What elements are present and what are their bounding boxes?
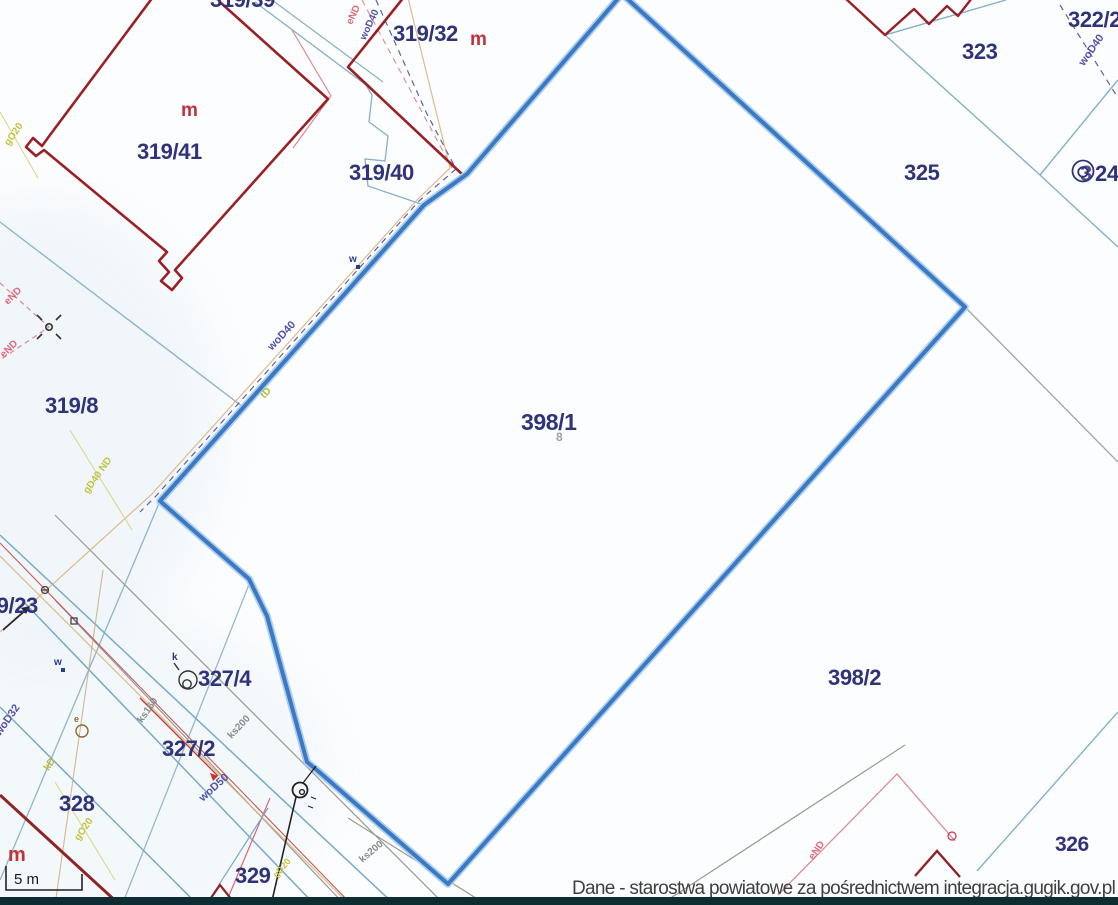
svg-text:398/2: 398/2 [828,665,881,690]
svg-text:398/1: 398/1 [521,409,577,435]
svg-text:328: 328 [59,791,95,816]
svg-text:327/2: 327/2 [162,736,215,761]
svg-text:w: w [53,657,62,668]
svg-text:319/8: 319/8 [45,393,98,418]
svg-text:322/2: 322/2 [1068,7,1118,32]
svg-text:319/41: 319/41 [137,139,202,164]
svg-text:m: m [8,844,26,866]
svg-text:319/39: 319/39 [210,0,275,12]
svg-text:323: 323 [962,39,998,64]
svg-text:326: 326 [1055,833,1089,856]
svg-text:319/23: 319/23 [0,593,38,618]
svg-text:e: e [74,714,79,724]
svg-text:m: m [470,29,487,50]
svg-text:k: k [172,652,178,663]
svg-text:3: 3 [1080,161,1092,186]
svg-text:327/4: 327/4 [198,666,252,691]
svg-text:319/32: 319/32 [393,21,458,46]
svg-text:319/40: 319/40 [349,160,414,185]
svg-text:24: 24 [1095,161,1118,186]
svg-text:w: w [348,254,357,265]
svg-text:329: 329 [235,863,271,888]
svg-text:5 m: 5 m [14,871,39,888]
svg-text:8: 8 [556,430,563,444]
svg-text:Dane - starostwa powiatowe za: Dane - starostwa powiatowe za pośrednict… [572,878,1115,899]
svg-text:325: 325 [904,160,940,185]
svg-text:m: m [181,100,198,121]
